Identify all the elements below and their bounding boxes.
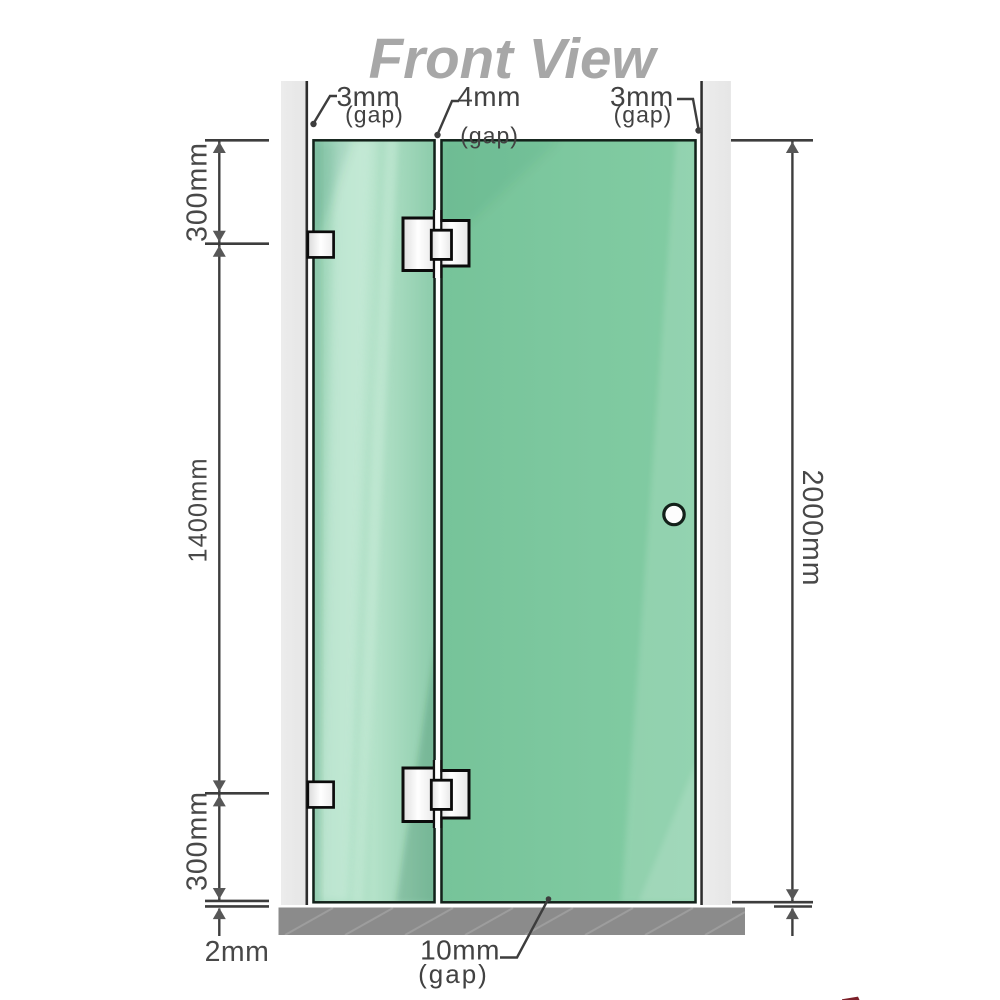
svg-text:300mm: 300mm [182,142,214,242]
svg-text:2mm: 2mm [205,936,270,968]
svg-text:4mm: 4mm [457,81,521,112]
svg-text:(gap): (gap) [460,123,519,149]
svg-text:300mm: 300mm [182,791,214,891]
svg-text:(gap): (gap) [614,102,673,128]
svg-text:1400mm: 1400mm [185,457,213,562]
svg-text:(gap): (gap) [418,959,489,989]
svg-text:(gap): (gap) [345,102,404,128]
svg-text:2000mm: 2000mm [796,470,828,587]
